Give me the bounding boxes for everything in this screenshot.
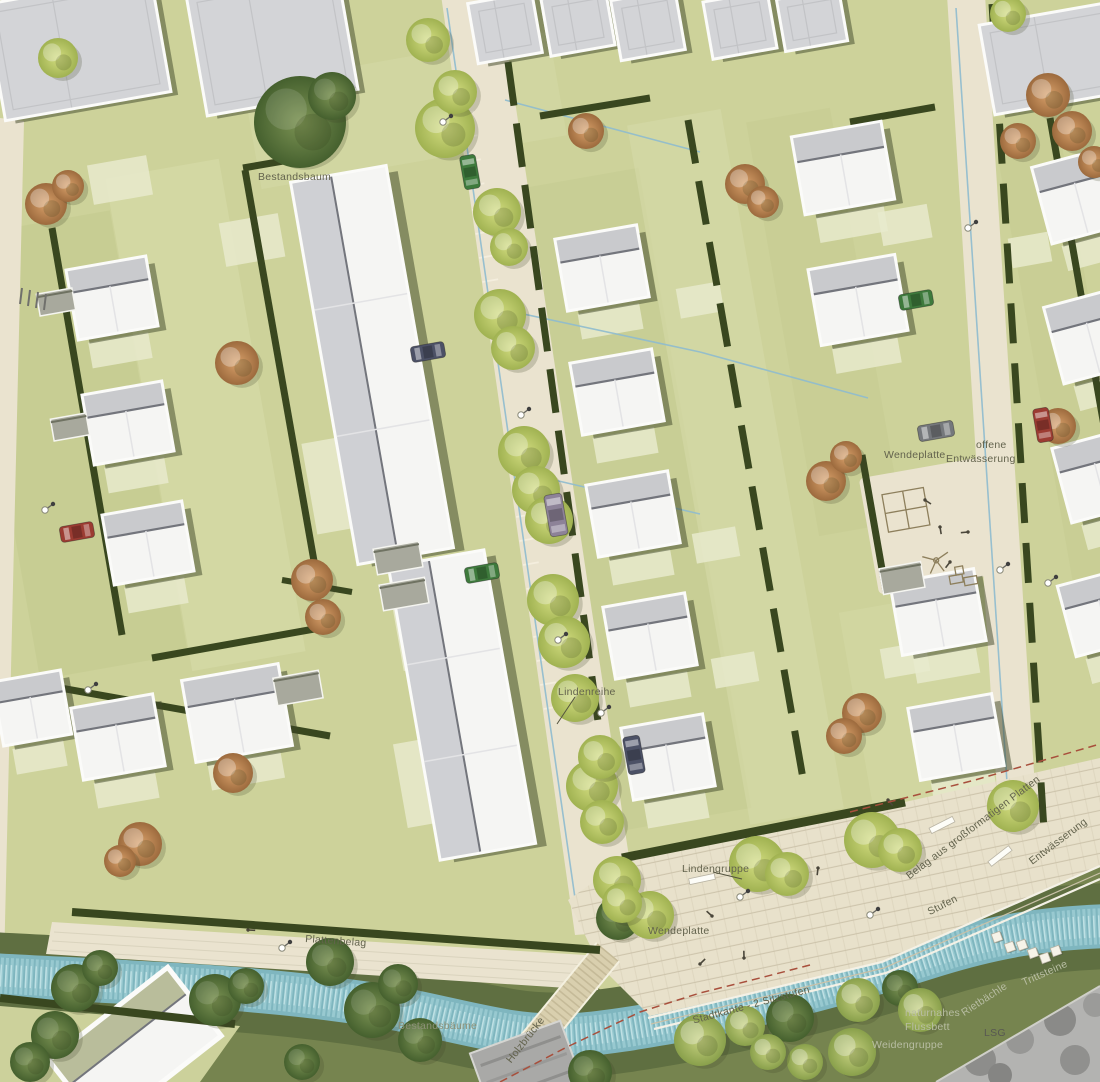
canopy-depth [897, 846, 915, 864]
label-wendeplatte-ost: Wendeplatte [884, 449, 946, 461]
car-roof [930, 424, 942, 438]
house [790, 118, 903, 220]
canopy-depth [550, 595, 571, 616]
car-roof [627, 749, 642, 762]
lamp-base [965, 225, 971, 231]
canopy-depth [212, 995, 233, 1016]
canopy-depth [494, 208, 513, 227]
label-entwaesserung-ost: Entwässerung [946, 453, 1016, 465]
canopy-depth [766, 1049, 780, 1063]
canopy-depth [589, 781, 610, 802]
canopy-depth [118, 858, 131, 871]
lamp-head [746, 889, 750, 893]
canopy-depth [321, 614, 335, 628]
canopy-depth [417, 1036, 435, 1054]
label-bestandsbaum: Bestandsbaum [258, 171, 331, 183]
canopy-depth [521, 447, 542, 468]
canopy-depth [743, 1022, 759, 1038]
canopy-depth [52, 1031, 71, 1050]
lamp-base [85, 687, 91, 693]
house [906, 691, 1012, 786]
label-naturnahes: naturnahes [905, 1007, 960, 1019]
label-offene: offene [976, 439, 1007, 451]
lamp-base [867, 912, 873, 918]
house [553, 222, 657, 317]
lamp-head [94, 682, 98, 686]
canopy-depth [425, 36, 443, 54]
lamp-base [42, 507, 48, 513]
lamp-head [51, 502, 55, 506]
house [64, 253, 166, 345]
canopy-depth [396, 980, 412, 996]
lamp-head [607, 705, 611, 709]
canopy-depth [234, 359, 252, 377]
lamp-base [598, 710, 604, 716]
car-roof [548, 508, 564, 522]
canopy-depth [369, 1005, 391, 1027]
lamp-head [288, 940, 292, 944]
label-lindenreihe: Lindenreihe [558, 686, 616, 698]
lamp-base [279, 945, 285, 951]
canopy-depth [327, 958, 346, 977]
canopy-depth [844, 454, 857, 467]
canopy-depth [28, 1058, 44, 1074]
lamp-base [518, 412, 524, 418]
canopy-depth [441, 123, 465, 147]
canopy-depth [599, 818, 617, 836]
canopy-depth [620, 899, 636, 915]
site-plan-map: Bestandsbaum Wendeplatte offene Entwässe… [0, 0, 1100, 1082]
lamp-head [564, 632, 568, 636]
canopy-depth [309, 576, 326, 593]
canopy-depth [452, 88, 470, 106]
house [0, 667, 80, 751]
lamp-head [527, 407, 531, 411]
house [80, 378, 182, 470]
lamp-head [449, 114, 453, 118]
lamp-base [555, 637, 561, 643]
lamp-head [876, 907, 880, 911]
canopy-depth [1006, 11, 1020, 25]
canopy-depth [697, 1035, 718, 1056]
canopy-depth [1016, 138, 1030, 152]
canopy-depth [803, 1059, 817, 1073]
canopy-depth [43, 200, 60, 217]
canopy-depth [784, 870, 802, 888]
house [100, 498, 202, 590]
lamp-base [737, 894, 743, 900]
canopy-depth [510, 344, 528, 362]
house [69, 691, 173, 786]
canopy-depth [98, 965, 112, 979]
house [601, 590, 705, 685]
canopy-depth [1070, 127, 1086, 143]
canopy-depth [860, 709, 876, 725]
lamp-head [1006, 562, 1010, 566]
canopy-depth [842, 733, 856, 747]
label-weidengruppe: Weidengruppe [872, 1039, 943, 1051]
canopy-depth [72, 984, 91, 1003]
lamp-base [997, 567, 1003, 573]
canopy-depth [1045, 91, 1063, 109]
canopy-depth [561, 637, 582, 658]
lamp-base [1045, 580, 1051, 586]
canopy-depth [855, 996, 873, 1014]
canopy-depth [244, 983, 258, 997]
canopy-depth [584, 128, 598, 142]
lamp-base [440, 119, 446, 125]
label-lsg: LSG [984, 1027, 1006, 1039]
lamp-head [974, 220, 978, 224]
label-bestandsbaeume: Bestandsbäume [398, 1020, 477, 1032]
canopy-depth [137, 840, 155, 858]
house [568, 346, 672, 441]
canopy-depth [849, 1048, 868, 1067]
canopy-depth [329, 92, 348, 111]
canopy-depth [824, 477, 840, 493]
label-wendeplatte-sued: Wendeplatte [648, 925, 710, 937]
canopy-depth [56, 54, 72, 70]
building-roof [469, 0, 540, 62]
label-flussbett: Flussbett [905, 1021, 950, 1033]
canopy-depth [66, 183, 79, 196]
label-lindengruppe: Lindengruppe [682, 863, 749, 875]
canopy-depth [787, 1014, 806, 1033]
canopy-depth [761, 199, 774, 212]
canopy-depth [597, 753, 615, 771]
canopy-depth [300, 1059, 314, 1073]
canopy-depth [1056, 423, 1070, 437]
canopy-depth [507, 244, 522, 259]
lamp-head [1054, 575, 1058, 579]
house [584, 468, 688, 563]
canopy-depth [231, 769, 247, 785]
